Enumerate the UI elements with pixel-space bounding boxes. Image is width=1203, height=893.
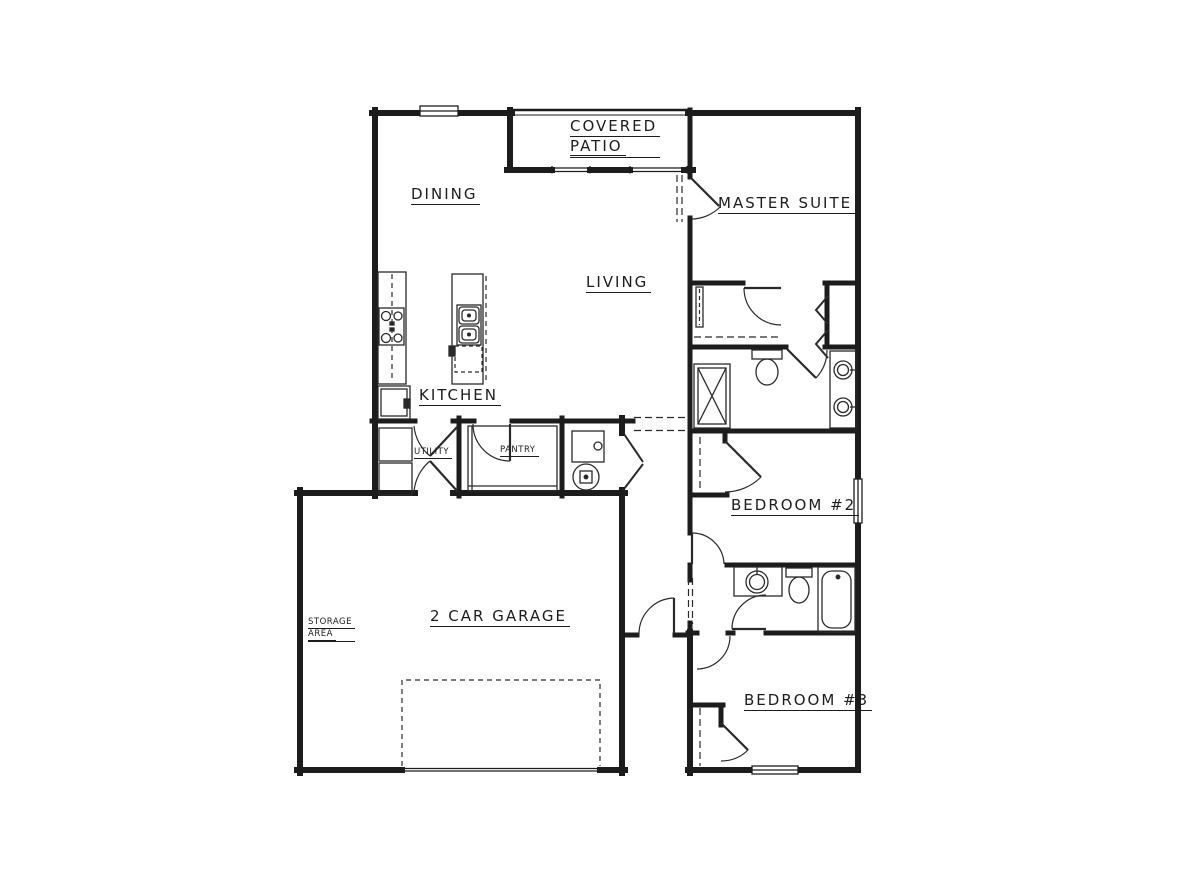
master-entry-header bbox=[677, 175, 682, 222]
utility-doors bbox=[414, 426, 458, 492]
label-dining: DINING bbox=[411, 186, 480, 205]
bedroom3-window bbox=[752, 766, 798, 774]
floor-plan-canvas: COVERED PATIO DINING MASTER SUITE LIVING… bbox=[0, 0, 1203, 893]
label-bedroom-2: BEDROOM #2 bbox=[731, 497, 859, 516]
pantry-shelves bbox=[468, 426, 557, 491]
hall-bath-door bbox=[732, 595, 766, 629]
label-living: LIVING bbox=[586, 274, 651, 293]
label-garage: 2 CAR GARAGE bbox=[430, 608, 570, 627]
bedroom3-closet-door bbox=[721, 723, 748, 761]
label-master-suite: MASTER SUITE bbox=[718, 195, 855, 214]
bedroom2-door bbox=[692, 533, 724, 564]
dining-window bbox=[420, 106, 458, 116]
label-pantry: PANTRY bbox=[500, 446, 539, 457]
label-covered-patio: COVERED PATIO bbox=[570, 118, 660, 158]
washer-dryer bbox=[379, 428, 412, 495]
dishwasher bbox=[455, 346, 482, 372]
master-entry-door bbox=[691, 178, 720, 219]
label-kitchen: KITCHEN bbox=[419, 387, 501, 406]
hall-vanity bbox=[734, 567, 782, 596]
hall-toilet bbox=[786, 568, 812, 603]
master-closet-door bbox=[744, 288, 781, 325]
patio-roof-edge bbox=[508, 110, 690, 115]
refrigerator bbox=[378, 386, 410, 419]
label-storage-area: STORAGE AREA bbox=[308, 618, 355, 642]
master-toilet bbox=[752, 350, 782, 385]
kitchen-island bbox=[449, 274, 483, 384]
garage-overhead-door bbox=[402, 769, 600, 772]
bedroom3-door bbox=[697, 636, 730, 669]
mechanical-closet-doors bbox=[624, 434, 643, 489]
furnace bbox=[572, 431, 604, 462]
front-door bbox=[639, 598, 674, 634]
label-utility: UTILITY bbox=[414, 448, 452, 459]
living-hall-opening bbox=[634, 418, 686, 431]
master-bath-door bbox=[787, 349, 827, 378]
bedroom2-closet-door bbox=[725, 441, 761, 492]
label-bedroom-3: BEDROOM #3 bbox=[744, 692, 872, 711]
water-heater bbox=[573, 464, 599, 490]
hall-opening bbox=[689, 578, 693, 624]
bathtub bbox=[818, 567, 855, 632]
master-double-vanity bbox=[830, 351, 856, 428]
shower bbox=[694, 364, 730, 428]
garage-door-track bbox=[402, 680, 600, 766]
